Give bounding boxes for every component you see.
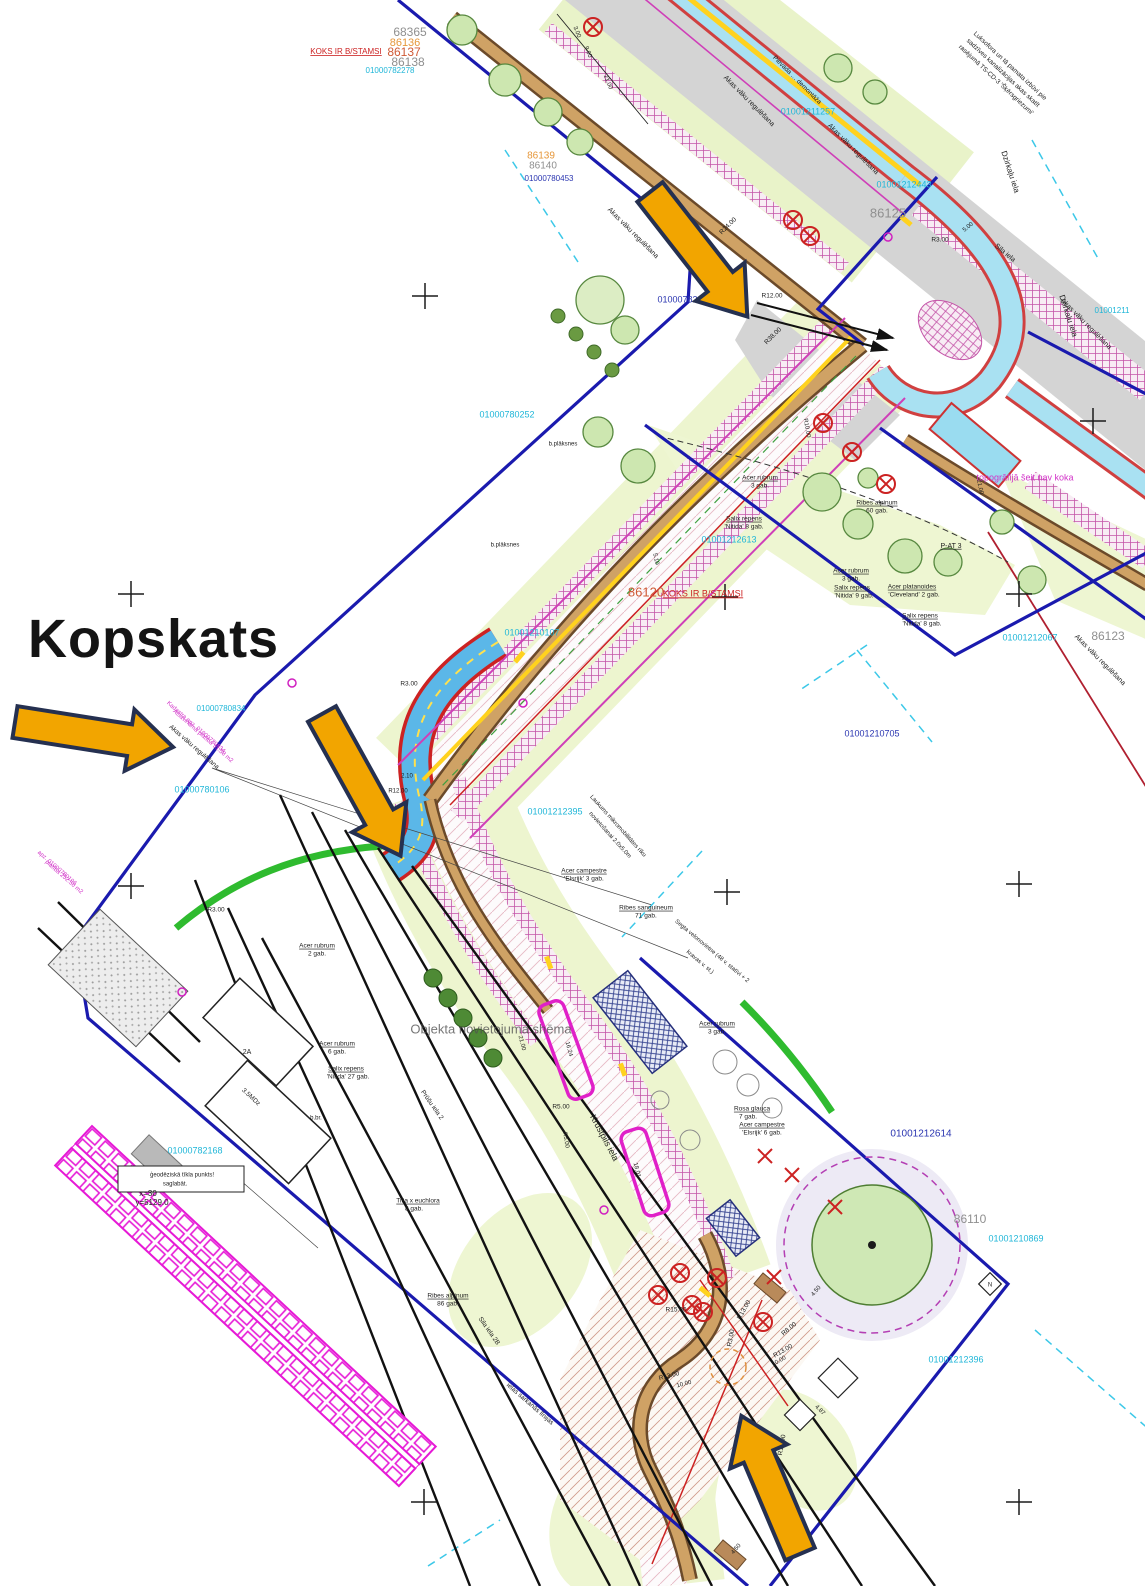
map-label: KOKS IR B/STAMSI xyxy=(663,588,743,598)
grid-cross xyxy=(1006,871,1032,897)
map-label: 2 gab. xyxy=(308,951,326,958)
geodetic-note-box xyxy=(118,1166,244,1192)
map-label: Dzirkaļu iela xyxy=(999,150,1021,195)
map-label: sadzīves kanalizācijas akas skatīt xyxy=(965,37,1041,109)
map-label: 'Cleveland' 2 gab. xyxy=(888,592,939,599)
map-label: Ribes alpinum xyxy=(856,500,897,507)
map-label: Acer platanoides xyxy=(888,584,937,591)
map-label: Objekta novietojuma shēma xyxy=(410,1021,572,1036)
building-35mdz xyxy=(205,1060,331,1183)
map-label: 01000780834 xyxy=(197,704,246,713)
map-label: y=5129.0 xyxy=(135,1198,169,1207)
map-label: Ribes sanguineum xyxy=(619,905,673,912)
map-label: 01000782278 xyxy=(366,66,415,75)
map-label: 86120 xyxy=(628,584,664,599)
map-label: 01001211257 xyxy=(781,106,835,116)
map-label: 3 gab. xyxy=(751,483,769,490)
map-label: 01000780106 xyxy=(174,784,229,794)
map-label: 01001212067 xyxy=(1002,632,1057,642)
map-label: Salix repens xyxy=(726,516,763,523)
map-label: Tilia x euchlora xyxy=(396,1198,440,1205)
map-label: 01001210869 xyxy=(988,1233,1043,1243)
map-label: R3.00 xyxy=(400,681,418,688)
map-label: 'Nitida' 8 gab. xyxy=(725,524,764,531)
map-label: R3.00 xyxy=(931,237,949,244)
map-label: Ribes alpinum xyxy=(427,1293,468,1300)
map-label: KOKS IR B/STAMSI xyxy=(310,47,381,56)
map-label: Laukums mikromobilitātes rīku xyxy=(588,794,647,858)
map-label: Acer campestre xyxy=(739,1122,785,1129)
map-label: 86123 xyxy=(1091,629,1125,643)
map-label: 'Nitida' 9 gab. xyxy=(835,593,874,600)
map-label: 'Elsrijk' 6 gab. xyxy=(742,1130,782,1137)
map-label: ģeodēziskā tīkla punkts! xyxy=(150,1172,214,1179)
map-label: 86125 xyxy=(870,205,906,220)
map-label: saglabāt. xyxy=(163,1182,188,1188)
map-label: 2A xyxy=(243,1049,252,1056)
map-label: 'Nitida' 27 gab. xyxy=(327,1074,370,1081)
map-label: Acer rubrum xyxy=(833,568,869,575)
grid-cross xyxy=(412,283,438,309)
map-label: Acer rubrum xyxy=(742,475,778,482)
map-label: topogrāfijā šeit nav koka xyxy=(976,472,1073,482)
map-label: 01001212613 xyxy=(701,534,756,544)
site-plan-drawing: 6836586136KOKS IR B/STAMSI86137861380100… xyxy=(0,0,1145,1586)
page-title: Kopskats xyxy=(28,608,279,670)
map-label: 01001212396 xyxy=(928,1354,983,1364)
map-label: 4.50 xyxy=(730,1542,743,1555)
map-label: 86 gab. xyxy=(437,1301,459,1308)
map-label: platība 252.50 m2 xyxy=(44,859,85,895)
grid-cross xyxy=(1006,1489,1032,1515)
x-mark-icon xyxy=(785,1168,799,1182)
grid-cross xyxy=(714,879,740,905)
map-label: b.plāksnes xyxy=(549,442,578,448)
map-label: R12.00 xyxy=(762,293,783,300)
map-label: x=30 xyxy=(139,1189,157,1198)
map-label: 01001212395 xyxy=(527,806,582,816)
grid-cross xyxy=(118,581,144,607)
map-label: 7 gab. xyxy=(739,1114,757,1121)
map-label: 01001210705 xyxy=(844,728,899,738)
map-label: 'Elsrijk' 3 gab. xyxy=(564,876,604,883)
site-plan-page: 6836586136KOKS IR B/STAMSI86137861380100… xyxy=(0,0,1145,1586)
map-label: 2.10 xyxy=(401,774,413,780)
map-label: Salix repens xyxy=(834,585,871,592)
map-label: 01000782168 xyxy=(167,1145,222,1155)
map-label: Salix repens xyxy=(902,613,939,620)
map-label: 01001212614 xyxy=(890,1129,952,1140)
map-label: 71 gab. xyxy=(635,913,657,920)
map-label: b.br. xyxy=(310,1116,322,1122)
map-label: Rosa glauca xyxy=(734,1106,771,1113)
map-label: P-AT 3 xyxy=(940,543,961,550)
map-label: 6 gab. xyxy=(328,1049,346,1056)
map-label: R3.00 xyxy=(207,907,225,914)
map-label: Acer rubrum xyxy=(699,1021,735,1028)
map-label: Salix repens xyxy=(328,1066,365,1073)
map-label: b.plāksnes xyxy=(491,543,520,549)
map-label: Acer rubrum xyxy=(299,943,335,950)
utility-corridor-band xyxy=(55,1126,436,1486)
map-label: 01001210107 xyxy=(504,627,559,637)
map-label: 'Nitida' 8 gab. xyxy=(903,621,942,628)
map-label: 86110 xyxy=(954,1212,987,1226)
map-label: 60 gab. xyxy=(866,508,888,515)
map-label: R5.00 xyxy=(552,1104,570,1111)
map-label: 01000780252 xyxy=(479,409,534,419)
map-label: 3 gab. xyxy=(842,576,860,583)
map-label: R15.00 xyxy=(666,1307,687,1314)
map-label: 01001211 xyxy=(1095,306,1131,315)
map-label: R12.00 xyxy=(388,789,408,795)
map-label: 01000780453 xyxy=(525,174,574,183)
map-label: 8 gab. xyxy=(405,1206,423,1213)
overview-arrow-icon xyxy=(10,691,178,777)
x-mark-icon xyxy=(758,1149,772,1163)
map-label: Segta velonovietne (48 v. statīvi + 2 xyxy=(673,919,750,985)
map-label: Acer rubrum xyxy=(319,1041,355,1048)
tree-removal-icon xyxy=(877,475,895,493)
map-label: Prūšu iela 2 xyxy=(419,1089,445,1121)
map-label: 01001212443 xyxy=(876,179,931,189)
map-label: 3 gab. xyxy=(708,1029,726,1036)
map-label: N xyxy=(988,1283,992,1289)
map-label: 86140 xyxy=(529,161,557,172)
map-label: Acer campestre xyxy=(561,868,607,875)
